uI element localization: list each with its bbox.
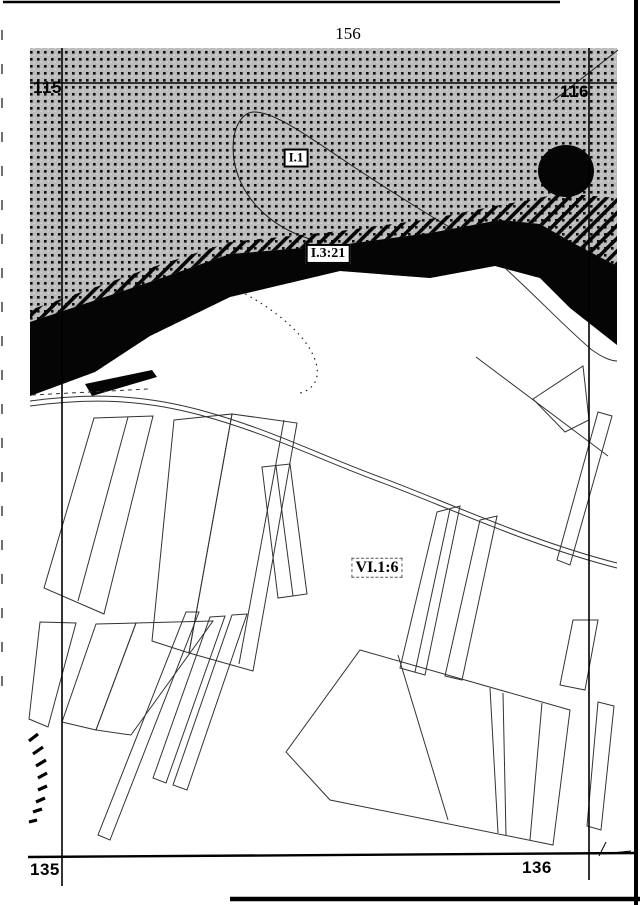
scanned-map-page: 156 115116135136I.1I.3:21VI.1:6 xyxy=(0,0,640,905)
parcel-divider xyxy=(78,417,128,601)
slope-hatch-mark xyxy=(38,773,47,778)
parcel xyxy=(152,414,232,653)
road-lower-line xyxy=(30,401,617,568)
grid-line-horizontal-bottom xyxy=(28,853,637,857)
grid-label-135: 135 xyxy=(30,861,60,878)
slope-hatch-mark xyxy=(29,820,37,822)
grid-label-136: 136 xyxy=(522,859,552,876)
field-block-divider xyxy=(530,703,542,840)
field-block xyxy=(286,650,570,845)
parcel xyxy=(29,622,76,727)
slope-hatch-mark xyxy=(33,747,43,754)
grid-label-115: 115 xyxy=(33,79,62,96)
parcel xyxy=(96,621,213,735)
region-label-vi1-6: VI.1:6 xyxy=(351,558,402,578)
parcel-sliver xyxy=(98,612,199,840)
parcel xyxy=(557,412,612,565)
slope-hatch-mark xyxy=(38,786,47,790)
region-label-i1: I.1 xyxy=(284,149,309,168)
parcel-sliver xyxy=(153,616,225,783)
slope-hatch-mark xyxy=(29,734,38,741)
field-block-divider xyxy=(398,655,448,820)
grid-label-116: 116 xyxy=(560,83,589,100)
parcel-triangle xyxy=(533,366,589,432)
parcel-divider xyxy=(276,466,293,596)
marsh-dotted-arc xyxy=(240,291,317,393)
slope-hatch-mark xyxy=(36,798,45,802)
parcel xyxy=(44,416,153,614)
map-features xyxy=(2,0,640,905)
parcel-divider xyxy=(239,420,284,664)
parcel-sliver xyxy=(173,614,247,790)
region-label-i3-21: I.3:21 xyxy=(306,244,351,264)
parcel-divider xyxy=(415,509,450,672)
field-block-divider xyxy=(490,688,498,833)
parcel xyxy=(62,623,136,730)
field-block-divider xyxy=(503,693,506,835)
road-upper-line xyxy=(30,396,617,563)
slope-hatch-mark xyxy=(33,809,42,812)
pond-blob xyxy=(538,145,594,197)
page-number: 156 xyxy=(335,24,361,44)
slope-hatch-mark xyxy=(36,760,46,766)
bank-dash xyxy=(85,370,157,396)
parcel xyxy=(560,620,598,690)
parcel xyxy=(587,702,614,830)
map-canvas xyxy=(0,0,640,905)
